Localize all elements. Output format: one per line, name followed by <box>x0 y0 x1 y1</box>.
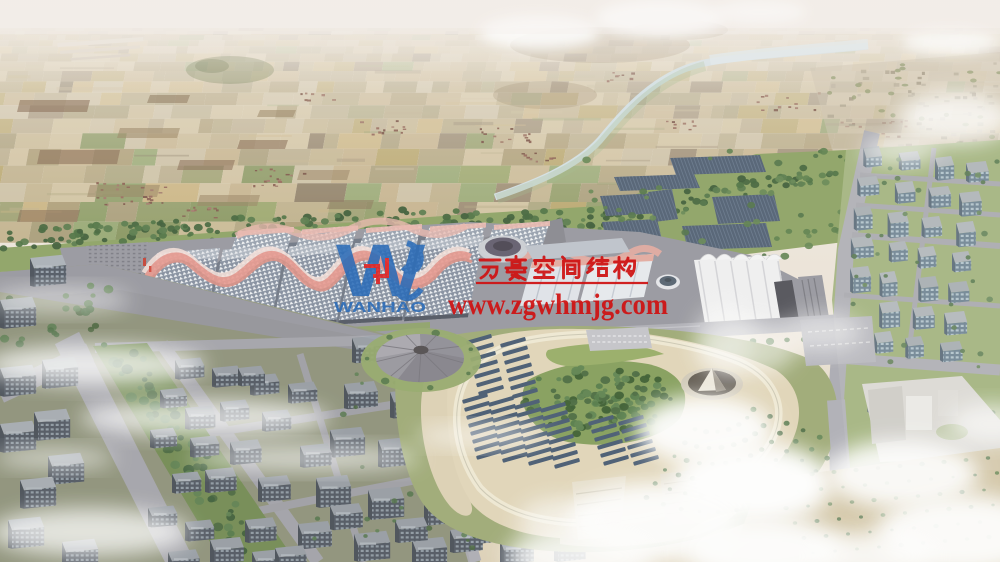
svg-text:WANHAO: WANHAO <box>334 299 426 316</box>
svg-text:www.zgwhmjg.com: www.zgwhmjg.com <box>448 288 668 321</box>
